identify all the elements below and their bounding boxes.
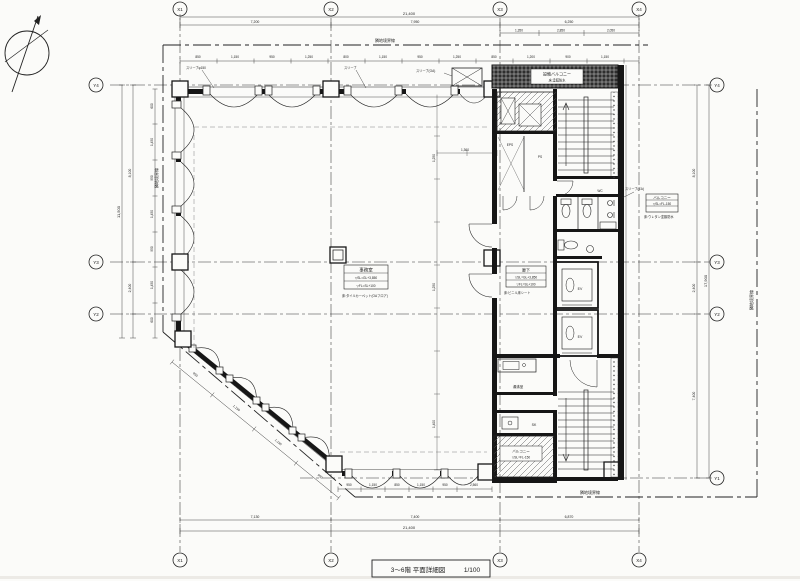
svg-text:6,250: 6,250 (565, 20, 574, 24)
sleeve-callout-3: スリーブ(OA) (416, 68, 435, 73)
boundary-label-top: 隣地境界線 (375, 37, 395, 43)
svg-text:1,150: 1,150 (379, 55, 387, 59)
svg-text:1,150: 1,150 (231, 55, 239, 59)
grid-bubble-y3-right: Y3 (714, 260, 720, 265)
wc-block: WC (558, 189, 616, 253)
duct-box (452, 68, 482, 86)
svg-text:850: 850 (491, 55, 497, 59)
svg-text:1,250: 1,250 (453, 55, 461, 59)
grid-bubble-y2-left: Y2 (93, 312, 99, 317)
corridor-fl: ▽FL=SL+100 (516, 283, 535, 287)
svg-text:900: 900 (565, 55, 571, 59)
sleeve-callout-4: スリーブ(EA) (625, 186, 644, 191)
grid-bubble-y2-right: Y2 (714, 312, 720, 317)
equipment-balcony-label: 設備バルコニー (543, 71, 571, 77)
corridor-note: 床:ビニル床シート (504, 290, 530, 295)
kitchenette (498, 359, 536, 372)
drawing-scale: 1/100 (464, 567, 481, 574)
svg-text:21,400: 21,400 (403, 525, 416, 530)
slop-sink-room (502, 417, 518, 429)
svg-text:950: 950 (150, 246, 154, 252)
svg-text:2,400: 2,400 (128, 284, 132, 293)
sleeve-callout-1: スリーブφ150 (186, 65, 206, 70)
office-name: 事務室 (359, 267, 373, 274)
svg-text:1,250: 1,250 (305, 55, 313, 59)
grid-bubble-x4-bottom: X4 (636, 558, 642, 563)
accessible-wc (558, 240, 594, 253)
dimension-chain-office: 1,250 1,250 1,400 1,360 (432, 93, 497, 470)
room-tags: 事務室 ▽SL=GL+3,850 ▽FL=SL+100 床:タイルカーペット(O… (342, 194, 678, 298)
dimension-text-bottom: 950 1,150 850 1,150 950 2,560 7,130 7,40… (251, 483, 574, 530)
svg-text:1,150: 1,150 (274, 438, 283, 446)
grid-bubble-y3-left: Y3 (93, 260, 99, 265)
title-block: 3〜6階 平面詳細図 1/100 (372, 560, 490, 577)
dimension-text-left: 8,100 2,400 11,500 600 1,450 950 1,450 9… (116, 103, 154, 323)
svg-text:1,150: 1,150 (232, 404, 241, 412)
office-sl: ▽SL=GL+3,850 (355, 276, 378, 280)
svg-text:2,560: 2,560 (470, 483, 478, 487)
svg-text:2,850: 2,850 (557, 29, 565, 33)
sleeve-callout-2: スリーブ (344, 65, 357, 70)
svg-text:6,870: 6,870 (565, 515, 574, 519)
svg-text:1,400: 1,400 (432, 420, 436, 428)
svg-text:1,450: 1,450 (150, 210, 154, 218)
ps-label: PS (538, 155, 542, 159)
balcony-right-name: バルコニー (653, 196, 671, 200)
svg-text:1,200: 1,200 (527, 55, 535, 59)
svg-text:7,950: 7,950 (411, 20, 420, 24)
svg-text:11,500: 11,500 (116, 205, 121, 218)
svg-text:2,050: 2,050 (607, 29, 615, 33)
svg-text:7,400: 7,400 (411, 515, 420, 519)
grid-bubble-y4-left: Y4 (93, 83, 99, 88)
slop-sink-label: SK (532, 423, 537, 427)
boundary-label-right: 隣地境界線 (748, 290, 754, 310)
svg-text:850: 850 (195, 55, 201, 59)
svg-text:7,130: 7,130 (251, 515, 260, 519)
grid-bubble-x2-top: X2 (328, 7, 334, 12)
svg-text:950: 950 (346, 483, 352, 487)
svg-text:17,900: 17,900 (703, 274, 708, 287)
svg-text:1,350: 1,350 (515, 29, 523, 33)
svg-text:1,250: 1,250 (432, 283, 436, 291)
corridor-name: 廊下 (522, 267, 530, 273)
balcony-bottom-label: バルコニー (512, 450, 530, 454)
svg-text:950: 950 (269, 55, 275, 59)
svg-text:850: 850 (394, 483, 400, 487)
svg-text:950: 950 (417, 55, 423, 59)
svg-text:1,450: 1,450 (150, 138, 154, 146)
grid-bubble-y1-right: Y1 (714, 476, 720, 481)
window-swing-arcs-left (181, 108, 194, 314)
svg-text:7,400: 7,400 (692, 392, 696, 401)
balcony-right-note: 床:ウレタン塗膜防水 (644, 214, 674, 219)
svg-text:950: 950 (192, 371, 199, 378)
grid-bubble-x2-bottom: X2 (328, 558, 334, 563)
svg-text:1,250: 1,250 (432, 154, 436, 162)
balcony-bottom-level: ▽SL=FL-150 (512, 456, 531, 460)
svg-text:600: 600 (150, 317, 154, 323)
office-fl: ▽FL=SL+100 (356, 284, 375, 288)
dimension-chain-diagonal: 950 1,150 1,150 950 (170, 357, 343, 501)
office-note: 床:タイルカーペット(OAフロア) (342, 293, 388, 298)
stair-upper (557, 92, 618, 196)
grid-bubble-x4-top: X4 (636, 7, 642, 12)
svg-text:2,400: 2,400 (692, 284, 696, 293)
svg-text:1,150: 1,150 (601, 55, 609, 59)
svg-text:950: 950 (317, 473, 324, 480)
elevator-shafts (556, 262, 598, 356)
core-zone: 設備バルコニー 床:塗膜防水 (469, 65, 626, 483)
svg-text:7,200: 7,200 (251, 20, 260, 24)
corridor-sl: ▽SL=GL+3,850 (515, 276, 538, 280)
boundary-lines (163, 45, 757, 497)
svg-text:950: 950 (442, 483, 448, 487)
dimension-text-right: 8,100 2,400 7,400 17,900 (692, 169, 708, 401)
floor-plan-drawing: 隣地境界線 隣地境界線 隣地境界線 隣地境界線 X1 X2 X3 X4 X1 X… (0, 0, 800, 581)
dimension-text-top: 21,400 7,200 7,950 6,250 1,350 2,850 2,0… (195, 11, 615, 59)
svg-text:8,100: 8,100 (692, 169, 696, 178)
stair-lower (558, 358, 618, 477)
svg-text:1,360: 1,360 (461, 148, 469, 152)
grid-bubble-x3-top: X3 (497, 7, 503, 12)
elevator-label-2: EV (578, 335, 583, 339)
grid-bubble-y4-right: Y4 (714, 83, 720, 88)
grid-bubble-x1-bottom: X1 (177, 558, 183, 563)
svg-text:800: 800 (343, 55, 349, 59)
svg-text:950: 950 (150, 175, 154, 181)
wc-label: WC (597, 189, 603, 193)
equipment-balcony-note: 床:塗膜防水 (549, 78, 567, 83)
balcony-right-level: ▽SL=FL-150 (653, 202, 672, 206)
svg-text:600: 600 (150, 103, 154, 109)
window-swing-arcs-top (210, 94, 488, 107)
svg-text:8,100: 8,100 (128, 169, 132, 178)
svg-text:21,400: 21,400 (403, 11, 416, 16)
svg-text:1,150: 1,150 (369, 483, 377, 487)
floor-plan-sheet: 隣地境界線 隣地境界線 隣地境界線 隣地境界線 X1 X2 X3 X4 X1 X… (0, 0, 800, 581)
urinal-icon (608, 200, 615, 218)
shaft-rooms: EPS PS (498, 136, 544, 210)
kitchenette-label: 湯沸室 (513, 384, 524, 389)
north-arrow-icon (5, 15, 49, 92)
grid-bubble-x3-bottom: X3 (497, 558, 503, 563)
eps-label: EPS (507, 143, 513, 147)
svg-text:1,450: 1,450 (150, 281, 154, 289)
beam-lines (194, 127, 487, 452)
toilet-icon (561, 199, 592, 218)
drawing-title: 3〜6階 平面詳細図 (391, 565, 446, 574)
boundary-label-bottom: 隣地境界線 (580, 489, 600, 495)
elevator-label-1: EV (578, 287, 583, 291)
grid-bubble-x1-top: X1 (177, 7, 183, 12)
svg-text:1,150: 1,150 (417, 483, 425, 487)
